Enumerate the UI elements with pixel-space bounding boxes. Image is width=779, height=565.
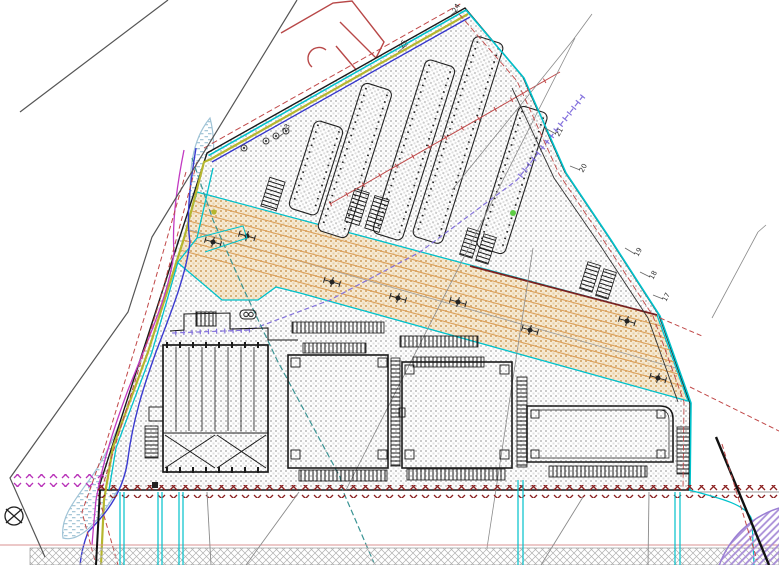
site-plan-svg: 25 24 23 21 20 19 18 17: [0, 0, 779, 565]
olive-marker-dot: [211, 209, 216, 214]
annex-comb: [145, 426, 158, 458]
gatehouse: [196, 312, 216, 326]
road-strip: [0, 545, 779, 565]
site-plan-canvas: 25 24 23 21 20 19 18 17: [0, 0, 779, 565]
fence-magenta: [12, 474, 104, 487]
green-marker-dot: [510, 210, 516, 216]
fence-dark-red: [95, 485, 779, 498]
